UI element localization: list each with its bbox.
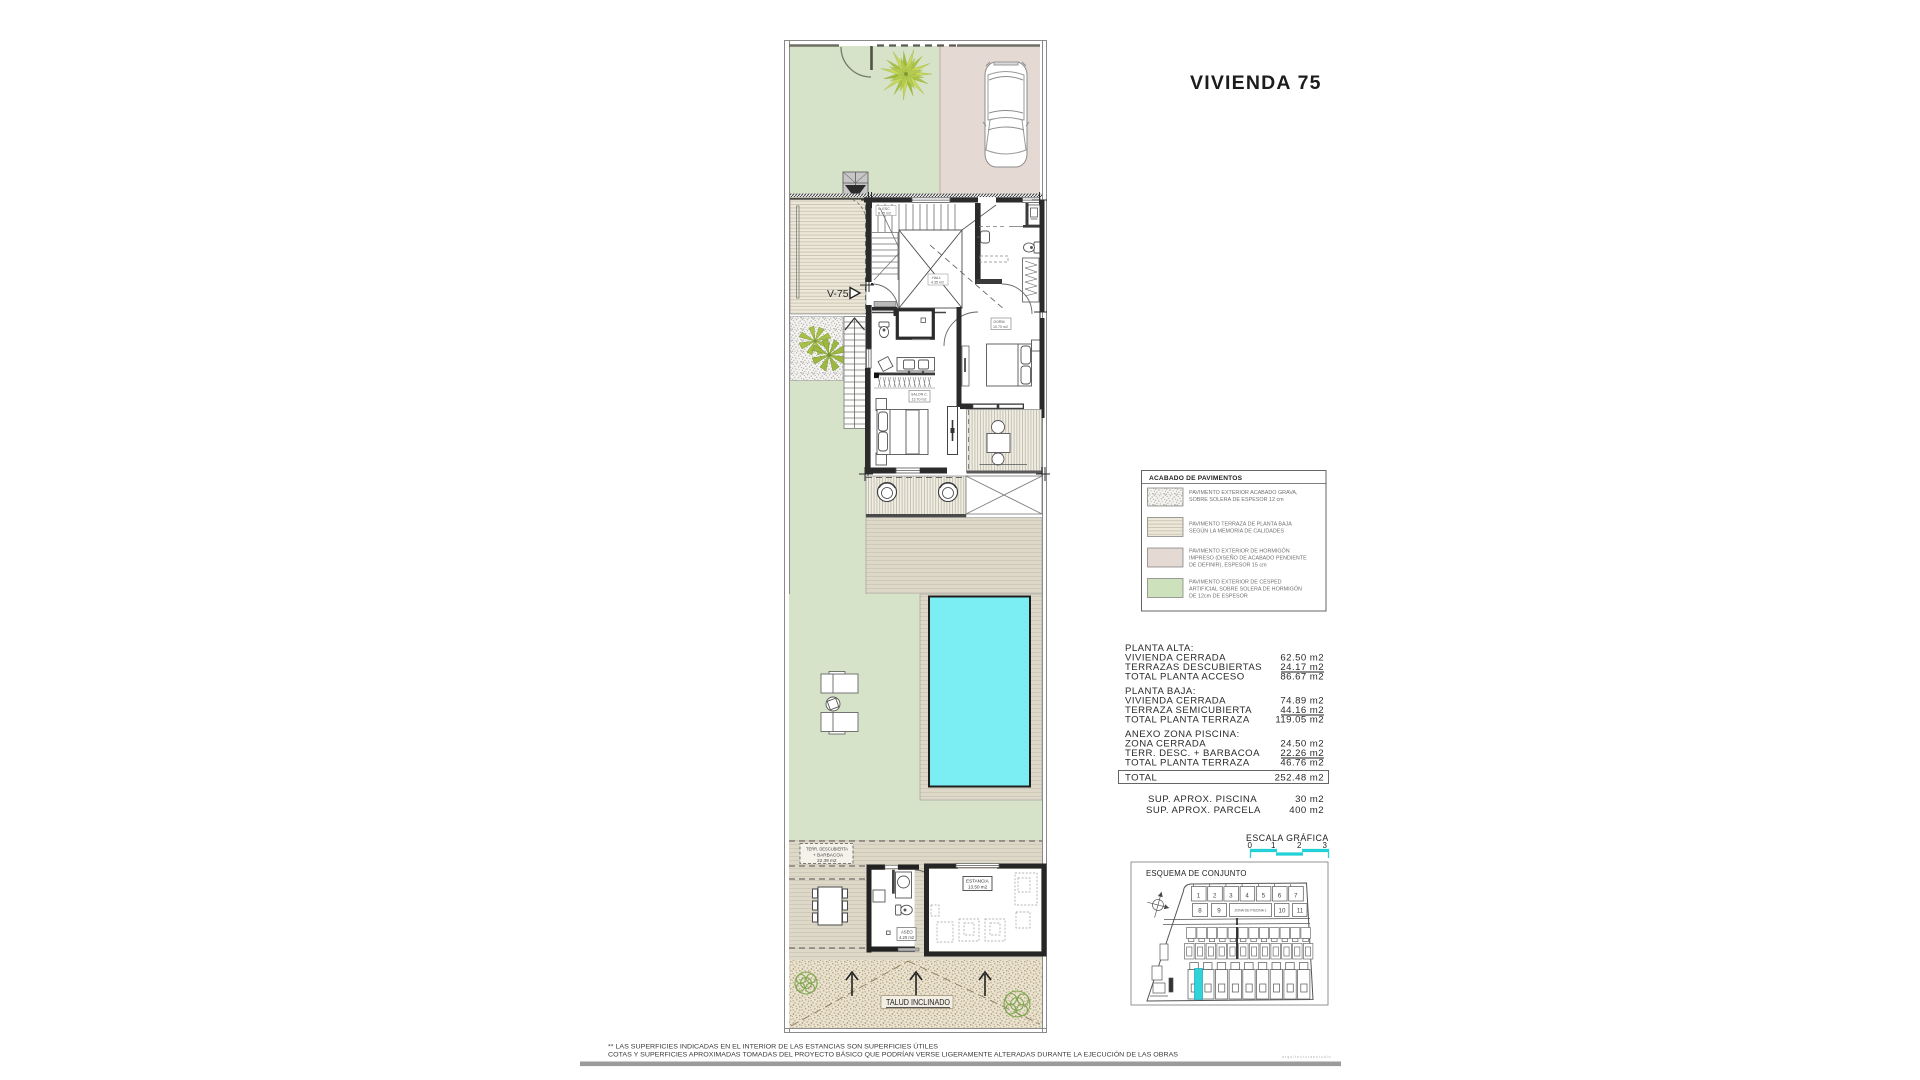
svg-text:HALL: HALL <box>932 276 941 280</box>
svg-text:ESCALA GRÁFICA: ESCALA GRÁFICA <box>1246 833 1329 843</box>
svg-text:5: 5 <box>1262 893 1266 900</box>
svg-text:3: 3 <box>1229 893 1233 900</box>
svg-text:2: 2 <box>1297 841 1302 850</box>
svg-text:46.76 m2: 46.76 m2 <box>1280 758 1324 769</box>
svg-text:8.75 m2: 8.75 m2 <box>878 212 891 216</box>
svg-text:** LAS SUPERFICIES INDICADAS E: ** LAS SUPERFICIES INDICADAS EN EL INTER… <box>608 1042 939 1051</box>
svg-text:PAVIMENTO TERRAZA DE PLANTA BA: PAVIMENTO TERRAZA DE PLANTA BAJA <box>1189 522 1292 528</box>
svg-text:TERR. DESCUBIERTA: TERR. DESCUBIERTA <box>806 847 849 852</box>
svg-text:30 m2: 30 m2 <box>1295 794 1324 805</box>
svg-text:13.70 m2: 13.70 m2 <box>912 398 927 402</box>
svg-text:0: 0 <box>1248 841 1253 850</box>
svg-text:8: 8 <box>1198 908 1202 915</box>
svg-text:TOTAL PLANTA TERRAZA: TOTAL PLANTA TERRAZA <box>1125 715 1250 726</box>
svg-text:4: 4 <box>1245 893 1249 900</box>
svg-text:9: 9 <box>1217 908 1221 915</box>
svg-text:4.35 m2: 4.35 m2 <box>931 281 944 285</box>
svg-text:22.39 m2: 22.39 m2 <box>817 858 837 863</box>
svg-text:SALON C.: SALON C. <box>911 393 928 397</box>
svg-text:TOTAL PLANTA TERRAZA: TOTAL PLANTA TERRAZA <box>1125 758 1250 769</box>
svg-text:ESQUEMA DE CONJUNTO: ESQUEMA DE CONJUNTO <box>1146 869 1247 878</box>
svg-text:TOTAL: TOTAL <box>1125 773 1157 784</box>
svg-text:1: 1 <box>1271 841 1276 850</box>
svg-text:TOTAL PLANTA ACCESO: TOTAL PLANTA ACCESO <box>1125 672 1245 683</box>
svg-text:ESTANCIA: ESTANCIA <box>966 879 990 884</box>
svg-text:1: 1 <box>1197 893 1201 900</box>
svg-text:PAVIMENTO EXTERIOR DE HORMIGÓN: PAVIMENTO EXTERIOR DE HORMIGÓN <box>1189 548 1290 555</box>
svg-text:SEGÚN LA MEMORIA DE CALIDADES: SEGÚN LA MEMORIA DE CALIDADES <box>1189 528 1284 535</box>
svg-text:ACABADO DE PAVIMENTOS: ACABADO DE PAVIMENTOS <box>1149 475 1243 482</box>
svg-text:400 m2: 400 m2 <box>1289 805 1324 816</box>
svg-text:11: 11 <box>1297 908 1304 915</box>
svg-text:IMPRESO (DISEÑO DE ACABADO PEN: IMPRESO (DISEÑO DE ACABADO PENDIENTE <box>1189 555 1307 562</box>
svg-text:86.67 m2: 86.67 m2 <box>1280 672 1324 683</box>
svg-text:TALUD INCLINADO: TALUD INCLINADO <box>886 998 950 1007</box>
svg-text:7: 7 <box>1294 893 1298 900</box>
svg-text:a r q u i t e c t u r a e s t: a r q u i t e c t u r a e s t u d i o <box>1282 1055 1331 1059</box>
svg-text:SUP. APROX. PISCINA: SUP. APROX. PISCINA <box>1148 794 1257 805</box>
svg-text:6: 6 <box>1278 893 1282 900</box>
svg-text:10: 10 <box>1279 908 1286 915</box>
svg-text:SUP. APROX. PARCELA: SUP. APROX. PARCELA <box>1146 805 1261 816</box>
svg-text:DE 12cm DE ESPESOR: DE 12cm DE ESPESOR <box>1189 594 1248 600</box>
svg-text:DORM.: DORM. <box>994 320 1006 324</box>
svg-text:COTAS Y SUPERFICIES APROXIMADA: COTAS Y SUPERFICIES APROXIMADAS TOMADAS … <box>608 1050 1179 1059</box>
svg-text:VIVIENDA 75: VIVIENDA 75 <box>1190 72 1322 94</box>
svg-text:V-75: V-75 <box>827 288 849 300</box>
svg-text:PAVIMENTO EXTERIOR ACABADO GRA: PAVIMENTO EXTERIOR ACABADO GRAVA, <box>1189 490 1298 496</box>
svg-text:2: 2 <box>1213 893 1217 900</box>
svg-text:SOBRE SOLERA DE ESPESOR 12 cm: SOBRE SOLERA DE ESPESOR 12 cm <box>1189 497 1284 503</box>
svg-text:3: 3 <box>1323 841 1328 850</box>
svg-text:119.05 m2: 119.05 m2 <box>1275 715 1324 726</box>
svg-text:4.20 m2: 4.20 m2 <box>899 935 915 940</box>
svg-text:DE DEFINIR), ESPESOR 15 cm: DE DEFINIR), ESPESOR 15 cm <box>1189 563 1267 569</box>
svg-text:13.50 m2: 13.50 m2 <box>968 885 988 890</box>
svg-text:ARTIFICIAL SOBRE SOLERA DE HOR: ARTIFICIAL SOBRE SOLERA DE HORMIGÓN <box>1189 586 1302 593</box>
svg-text:+ BARBACOA: + BARBACOA <box>813 853 844 858</box>
svg-text:PAVIMENTO EXTERIOR DE CÉSPED: PAVIMENTO EXTERIOR DE CÉSPED <box>1189 579 1282 586</box>
svg-text:ASEO: ASEO <box>901 930 913 935</box>
svg-text:ZONA DE PISCINA 1: ZONA DE PISCINA 1 <box>1234 909 1266 913</box>
svg-text:10.70 m2: 10.70 m2 <box>993 325 1008 329</box>
svg-text:252.48 m2: 252.48 m2 <box>1275 773 1324 784</box>
svg-text:S. ESC: S. ESC <box>878 207 890 211</box>
